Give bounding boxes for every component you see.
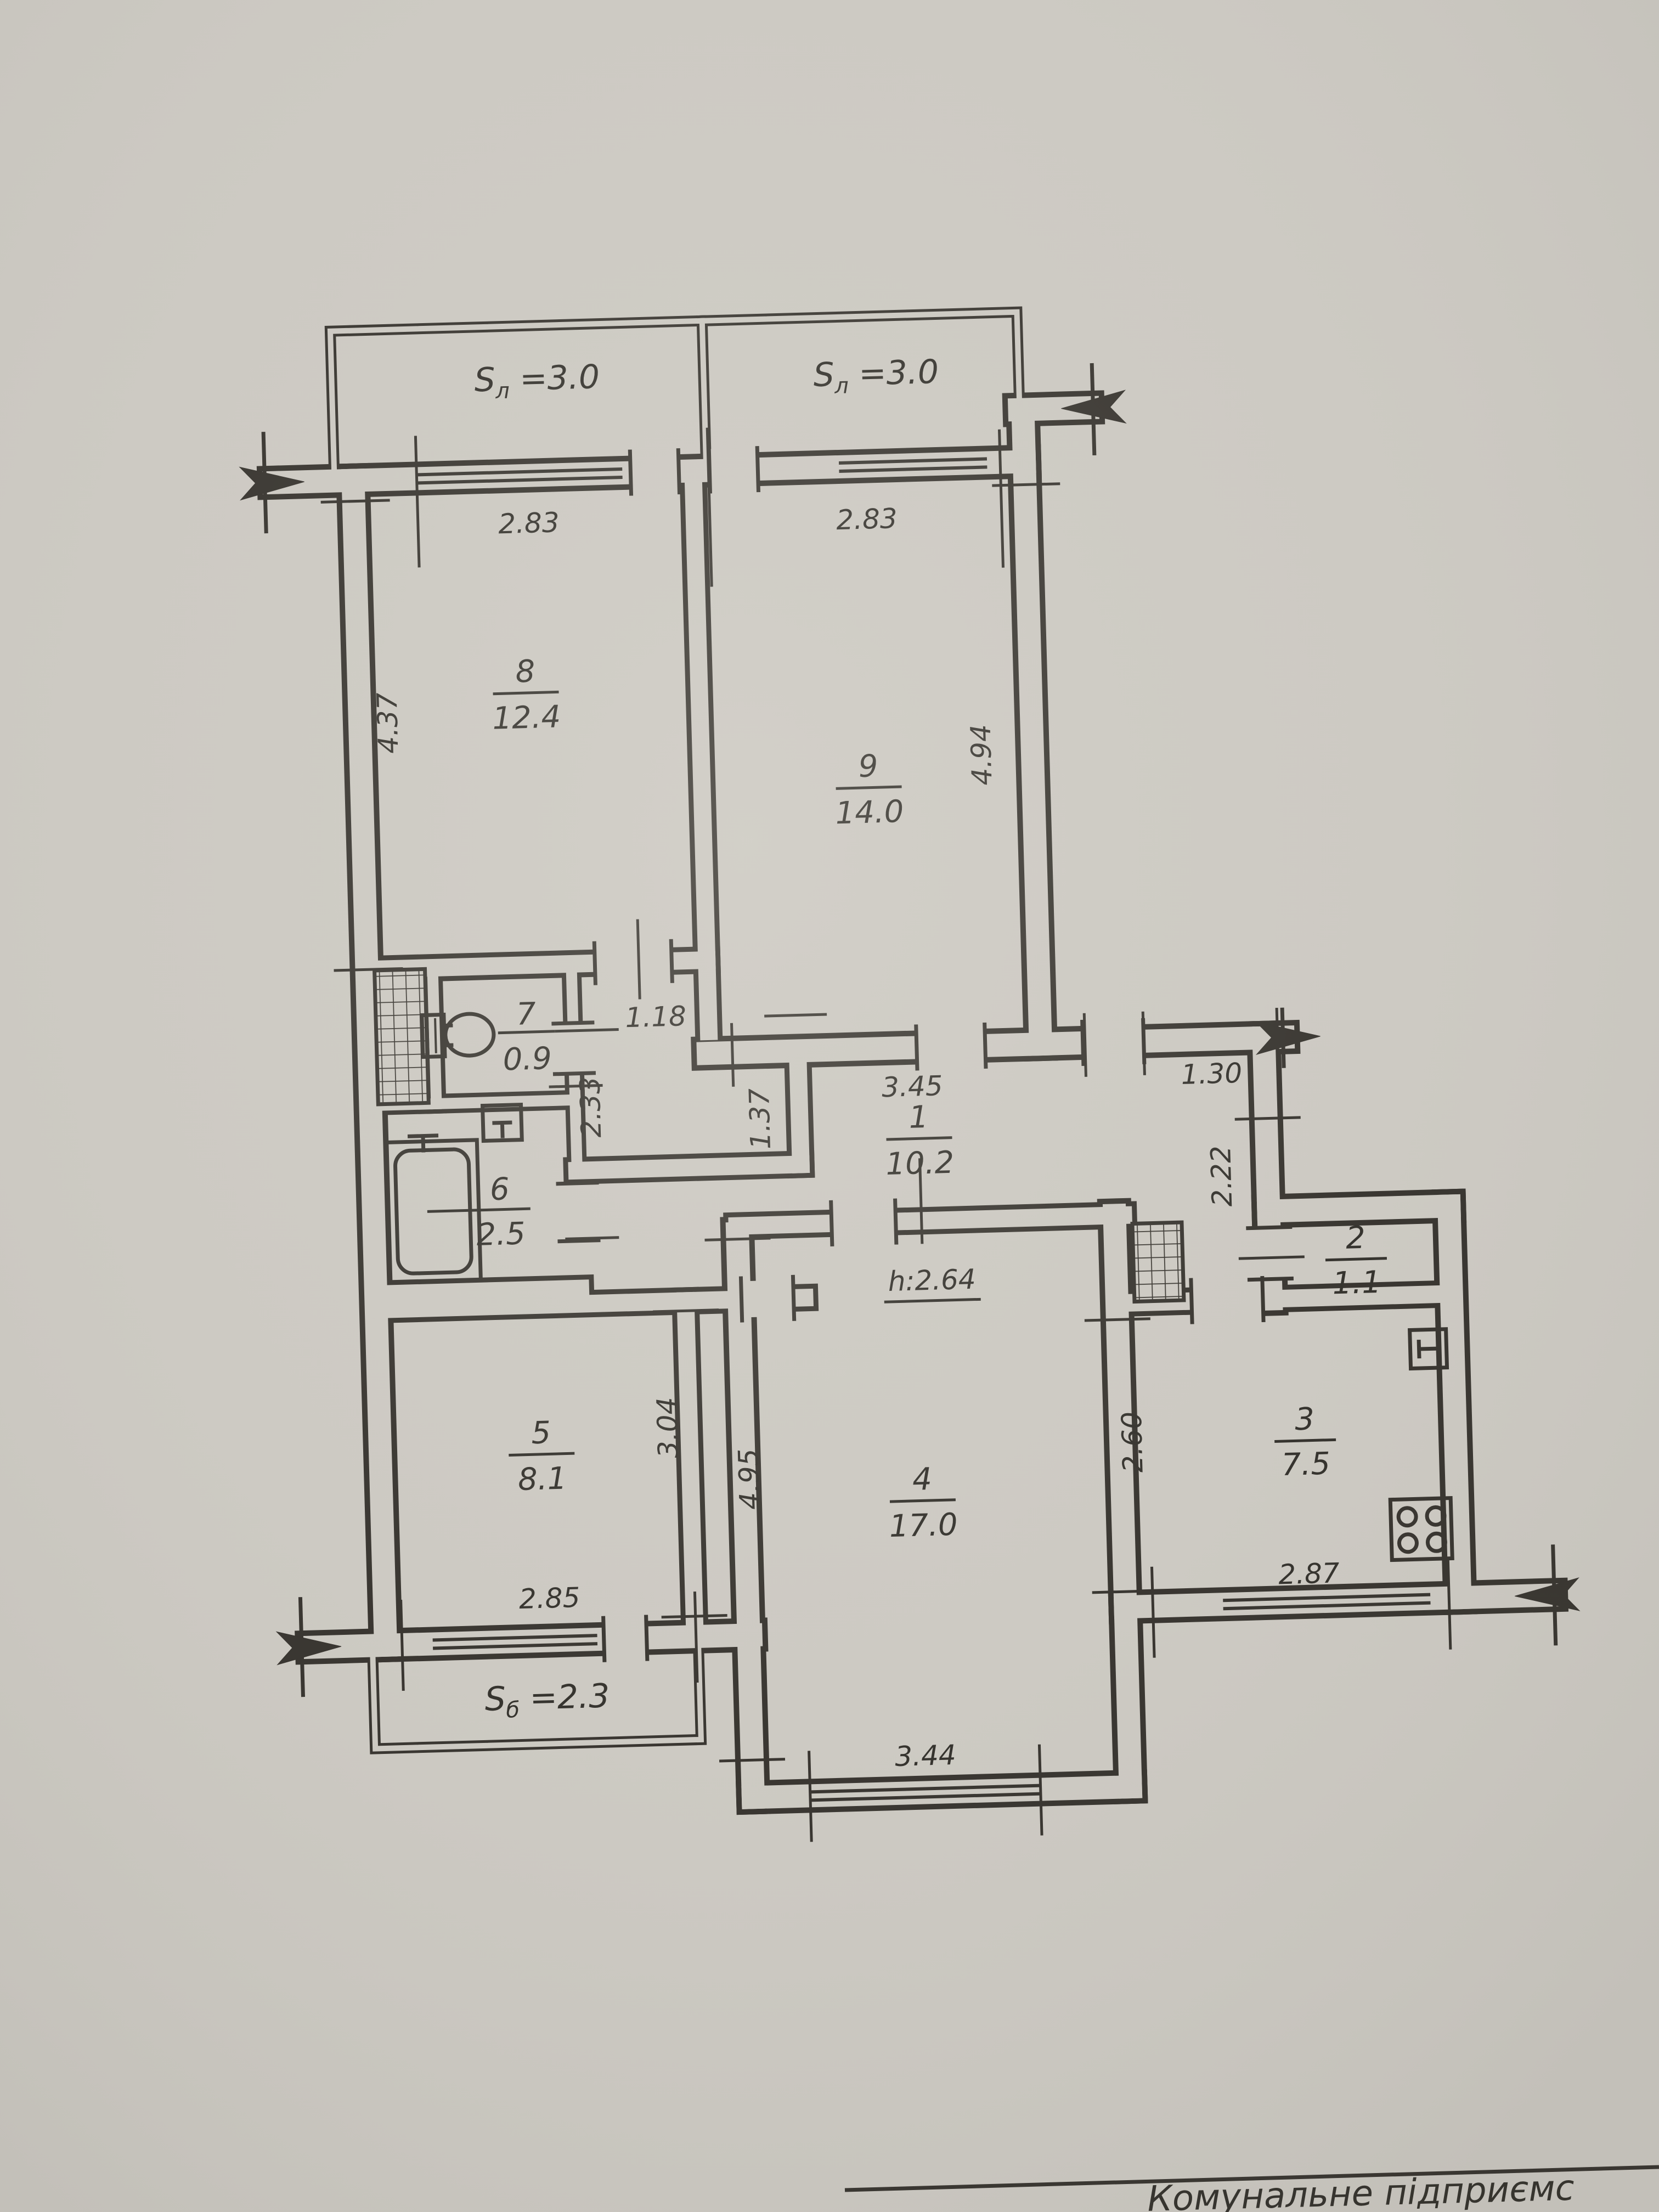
floorplan-canvas: 8 12.4 9 14.0 7 0.9 6 2.5 — [0, 0, 1659, 2212]
photographed-floorplan-page: { "document": { "kind": "apartment floor… — [0, 0, 1659, 2212]
photo-vignette — [0, 0, 1659, 2212]
